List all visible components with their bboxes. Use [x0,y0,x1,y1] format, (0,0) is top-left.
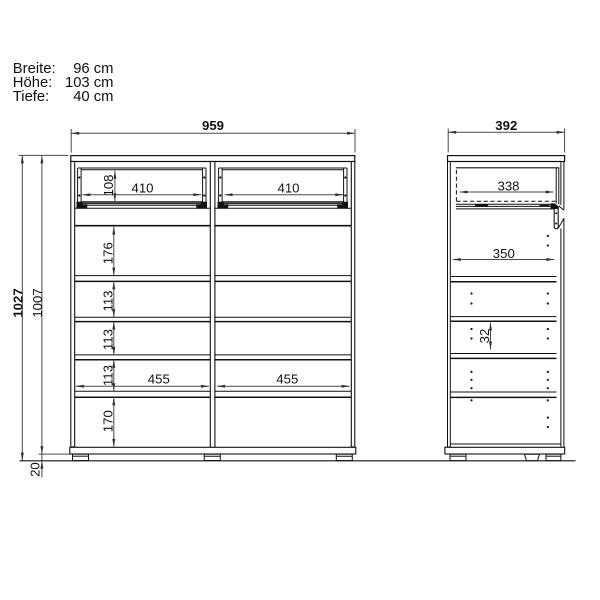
svg-text:113: 113 [100,365,115,386]
svg-text:350: 350 [493,246,515,261]
svg-text:455: 455 [148,371,170,386]
svg-text:410: 410 [277,180,299,195]
svg-text:32: 32 [477,329,492,344]
svg-text:1007: 1007 [30,288,45,317]
svg-text:40 cm: 40 cm [73,89,113,105]
svg-text:113: 113 [100,329,115,350]
svg-text:338: 338 [497,178,519,193]
svg-text:1027: 1027 [10,288,25,317]
svg-text:108: 108 [101,174,116,196]
svg-text:20: 20 [28,462,43,477]
svg-text:410: 410 [131,180,153,195]
svg-text:176: 176 [100,242,115,264]
svg-text:Tiefe:: Tiefe: [13,89,49,105]
svg-text:113: 113 [100,290,115,311]
svg-text:959: 959 [202,118,224,133]
svg-text:392: 392 [495,118,517,133]
svg-text:455: 455 [276,371,298,386]
svg-text:170: 170 [100,410,115,432]
